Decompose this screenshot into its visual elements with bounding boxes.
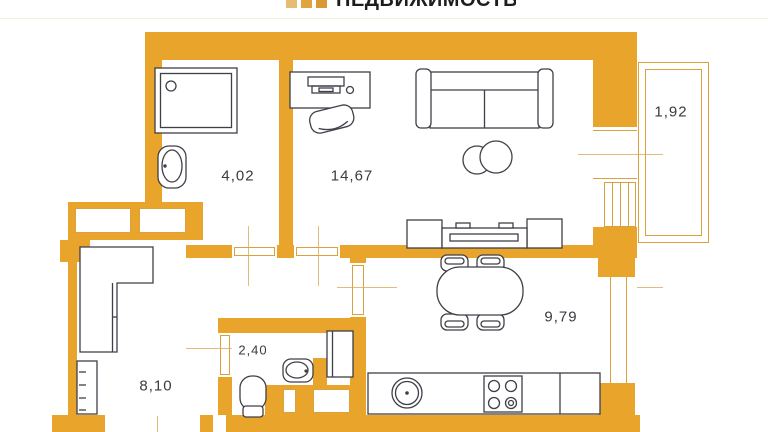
room-label-kitchen: 9,79 — [544, 309, 577, 326]
shower-tray-icon — [155, 68, 237, 133]
room-label-wc: 2,40 — [238, 343, 267, 358]
room-label-hallway: 8,10 — [139, 378, 172, 395]
tv-stand-icon — [407, 219, 562, 248]
sofa-icon — [416, 69, 553, 128]
wc-sink-icon — [283, 359, 313, 382]
furniture-layer — [0, 0, 768, 432]
bathroom-sink-icon — [158, 146, 186, 188]
washing-machine-icon — [327, 331, 353, 377]
wardrobe-icon — [80, 247, 153, 352]
room-label-balcony: 1,92 — [654, 104, 687, 121]
desk-icon — [290, 72, 370, 108]
toilet-icon — [240, 376, 266, 417]
dining-set-icon — [437, 255, 523, 330]
room-label-bathroom: 4,02 — [221, 168, 254, 185]
room-label-living-room: 14,67 — [331, 168, 374, 185]
floor-plan: НЕДВИЖИМОСТЬ — [0, 0, 768, 432]
coffee-table-icon — [463, 141, 512, 174]
hall-shelf-icon — [77, 361, 97, 414]
